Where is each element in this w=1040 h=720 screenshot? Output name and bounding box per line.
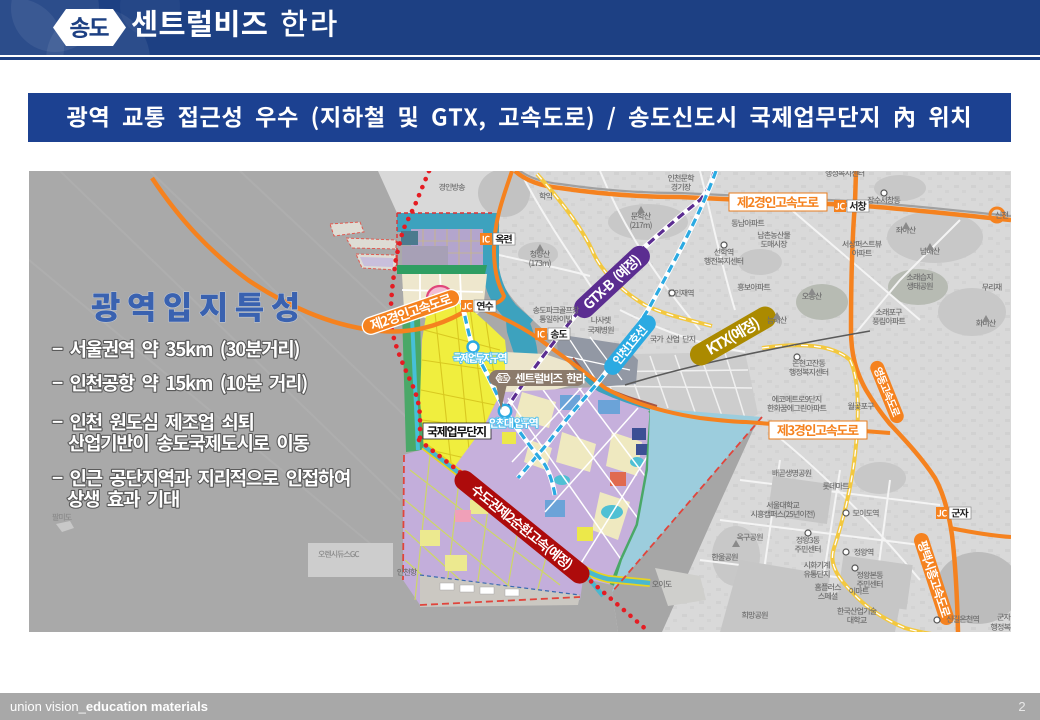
svg-text:union vision_education materia: union vision_education materials (10, 699, 208, 714)
svg-text:2: 2 (1018, 699, 1025, 714)
